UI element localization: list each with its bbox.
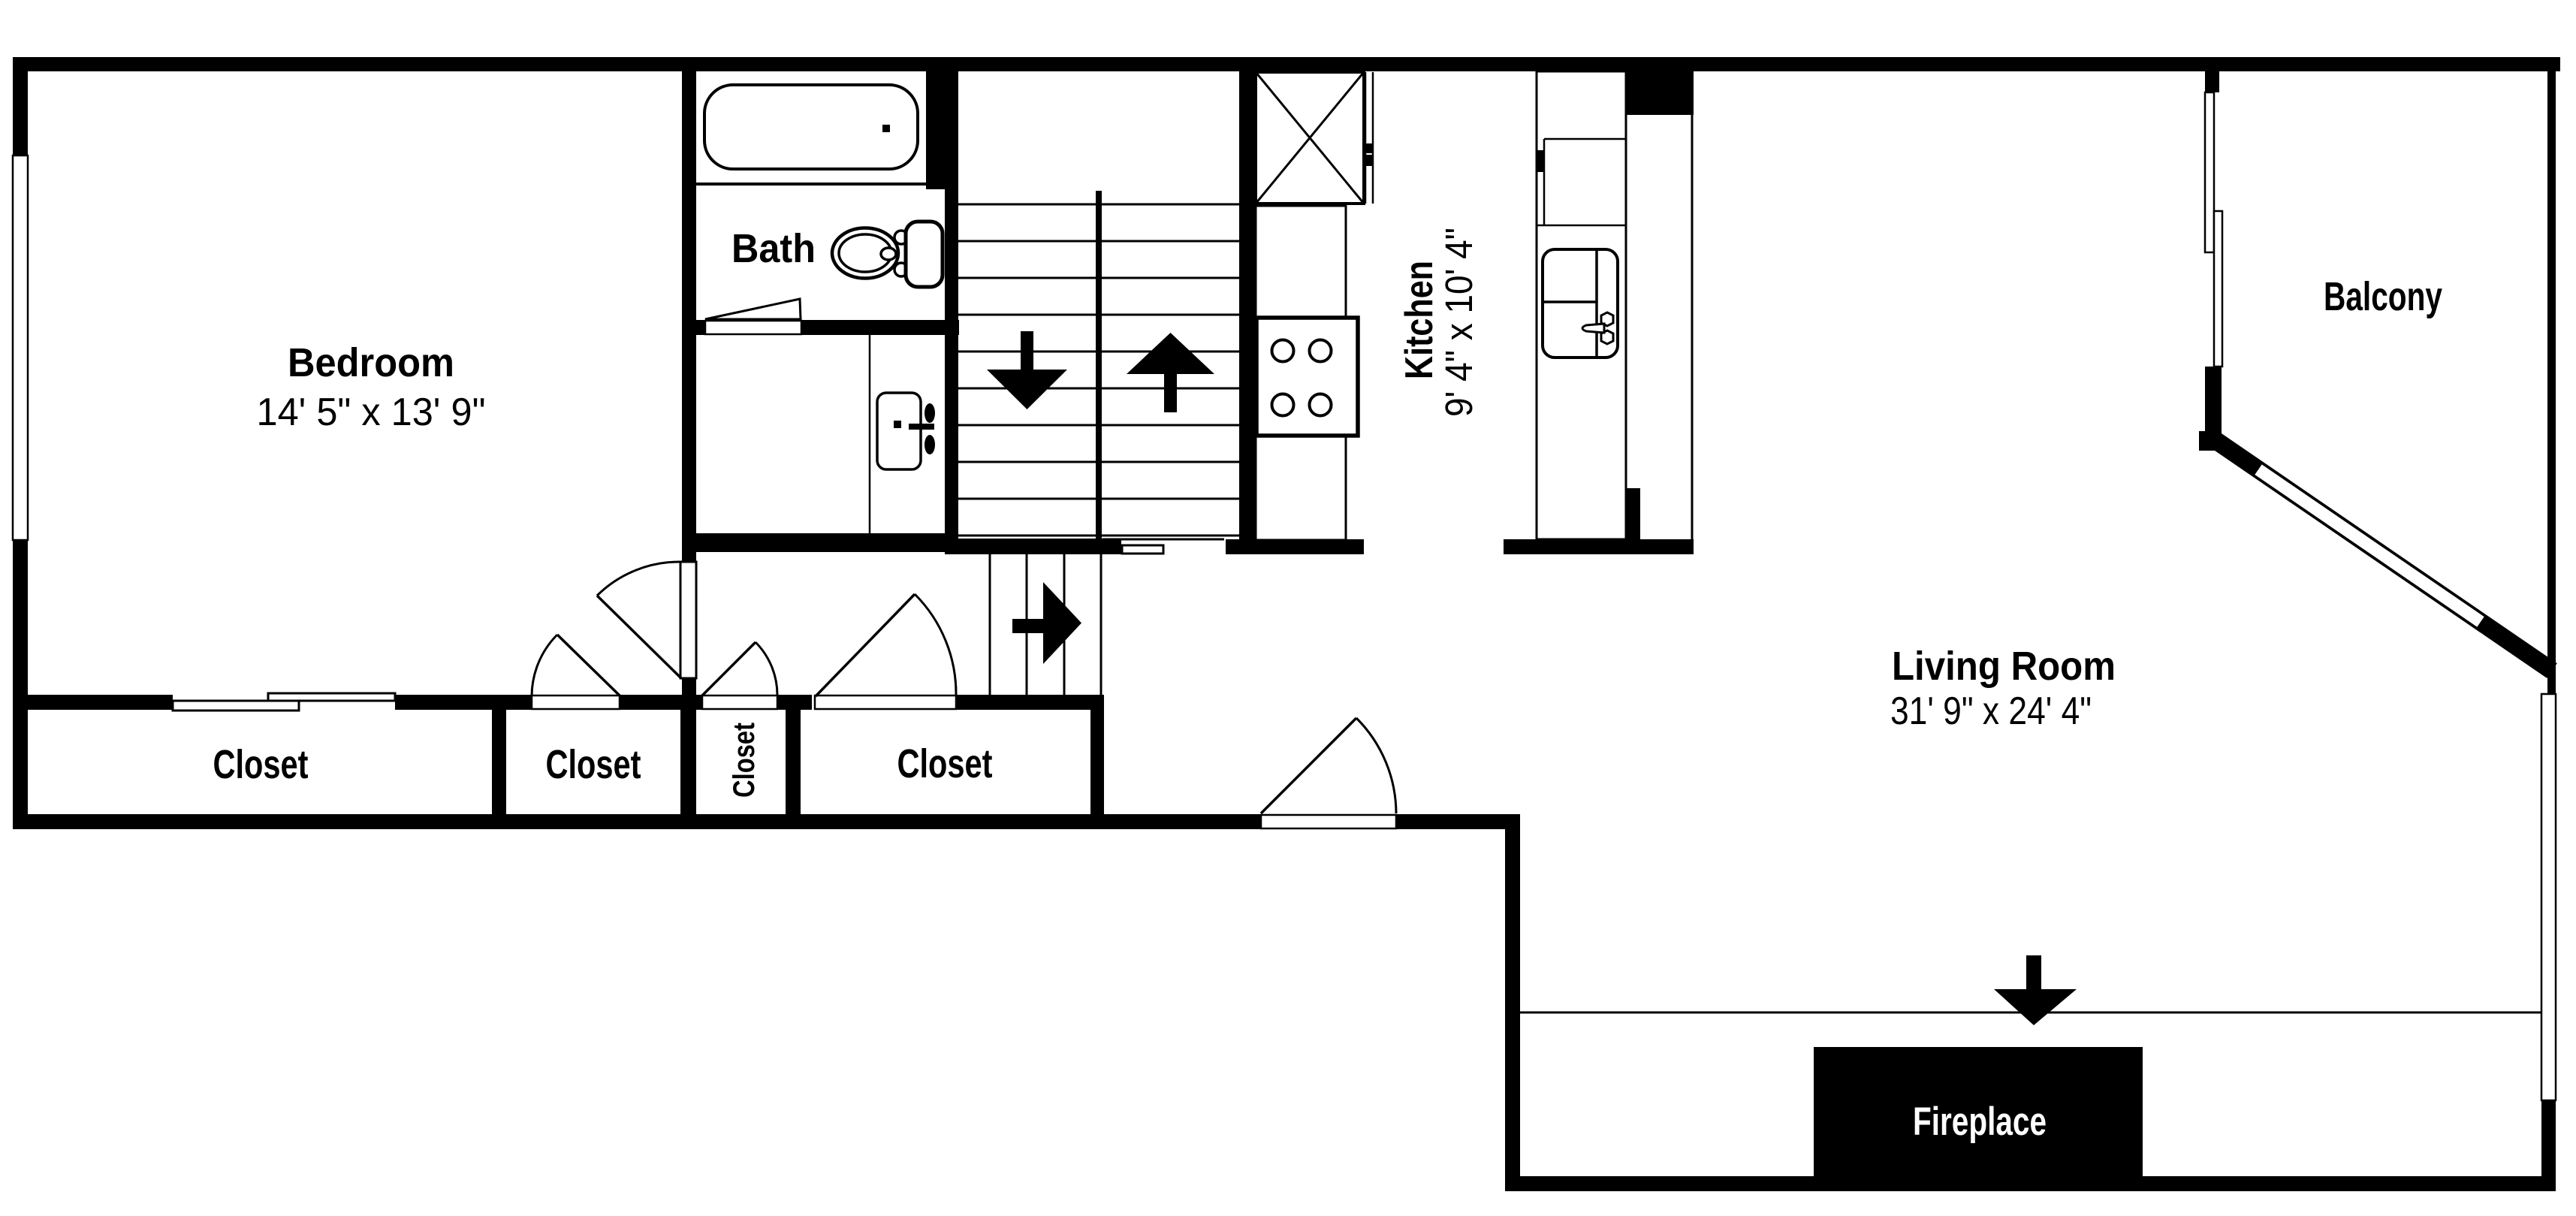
svg-text:Fireplace: Fireplace: [1913, 1100, 2047, 1144]
svg-text:Balcony: Balcony: [2324, 274, 2442, 319]
svg-text:31' 9" x 24' 4": 31' 9" x 24' 4": [1890, 689, 2092, 733]
svg-text:14' 5" x 13' 9": 14' 5" x 13' 9": [257, 391, 486, 434]
svg-text:Living Room: Living Room: [1892, 644, 2116, 689]
svg-text:Closet: Closet: [897, 741, 993, 786]
svg-text:Closet: Closet: [546, 742, 641, 787]
svg-text:Bedroom: Bedroom: [288, 340, 454, 385]
svg-text:Bath: Bath: [731, 226, 816, 271]
svg-text:Closet: Closet: [213, 742, 309, 787]
svg-text:9' 4" x 10' 4": 9' 4" x 10' 4": [1437, 228, 1480, 417]
svg-text:Closet: Closet: [728, 723, 761, 798]
svg-text:Kitchen: Kitchen: [1398, 261, 1441, 379]
